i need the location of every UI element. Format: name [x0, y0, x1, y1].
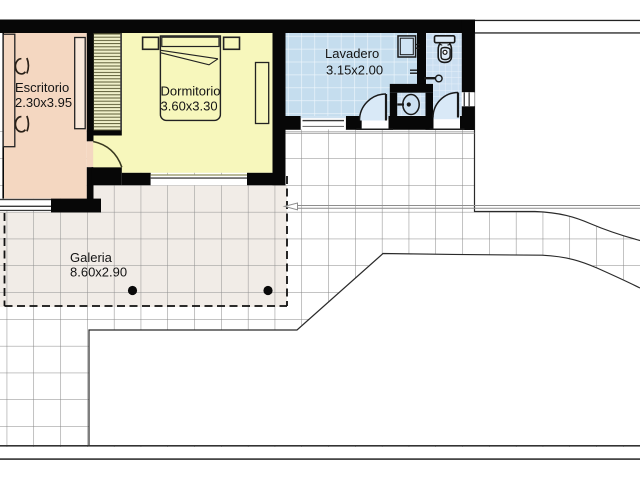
svg-text:Escritorio: Escritorio	[15, 80, 69, 95]
svg-text:3.60x3.30: 3.60x3.30	[161, 98, 218, 113]
svg-text:Galeria: Galeria	[70, 250, 113, 265]
svg-text:2.30x3.95: 2.30x3.95	[15, 95, 72, 110]
svg-text:Lavadero: Lavadero	[325, 46, 379, 61]
svg-text:8.60x2.90: 8.60x2.90	[70, 265, 127, 280]
svg-text:3.15x2.00: 3.15x2.00	[326, 63, 383, 78]
svg-text:Dormitorio: Dormitorio	[161, 84, 221, 99]
